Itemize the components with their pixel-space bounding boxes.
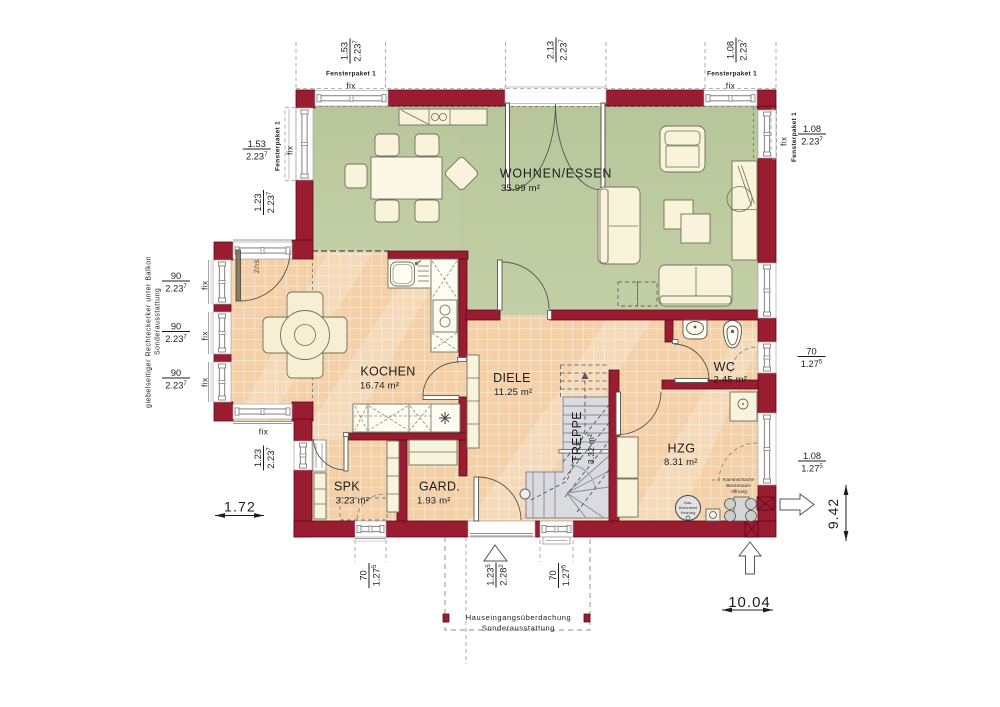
svg-text:Fensterpaket 1: Fensterpaket 1 [326, 71, 376, 78]
svg-text:fix: fix [200, 280, 210, 290]
svg-text:1.53: 1.53 [340, 42, 350, 60]
svg-text:Hauseingangsüberdachung: Hauseingangsüberdachung [466, 613, 572, 622]
svg-text:2.13: 2.13 [546, 41, 556, 59]
svg-text:SUZ: SUZ [253, 259, 260, 274]
svg-text:Fensterpaket 1: Fensterpaket 1 [275, 121, 282, 171]
svg-text:DIELE: DIELE [493, 371, 531, 385]
svg-text:Sonderausstattung: Sonderausstattung [482, 624, 555, 633]
svg-text:GARD.: GARD. [419, 480, 460, 494]
svg-text:öffnung: öffnung [731, 489, 747, 495]
svg-text:WC: WC [714, 360, 736, 374]
svg-text:Fensterpaket 1: Fensterpaket 1 [707, 71, 757, 78]
svg-text:fix: fix [259, 427, 269, 437]
svg-text:fix: fix [726, 81, 736, 91]
svg-text:TREPPE: TREPPE [570, 411, 584, 463]
svg-text:fix: fix [200, 377, 210, 387]
svg-text:35.99 m²: 35.99 m² [501, 183, 540, 194]
svg-text:90: 90 [171, 322, 181, 332]
svg-text:1.93 m²: 1.93 m² [417, 496, 451, 507]
svg-text:1.23: 1.23 [253, 449, 263, 467]
svg-text:2.45 m²: 2.45 m² [714, 375, 748, 386]
svg-text:Kaminschacht-: Kaminschacht- [723, 477, 755, 483]
svg-text:11.25 m²: 11.25 m² [494, 387, 532, 398]
svg-text:giebelseitiger Rechteckerker u: giebelseitiger Rechteckerker unter Balko… [146, 256, 153, 408]
svg-text:90: 90 [171, 368, 181, 378]
svg-text:fix: fix [346, 81, 356, 91]
svg-text:1.53: 1.53 [248, 139, 266, 149]
svg-text:1.08: 1.08 [726, 41, 736, 59]
svg-text:Sonderausstattung: Sonderausstattung [155, 288, 162, 355]
svg-text:1.08: 1.08 [803, 124, 821, 134]
svg-text:70: 70 [548, 570, 558, 580]
svg-text:1.08: 1.08 [803, 451, 821, 461]
svg-text:Fensterpaket 1: Fensterpaket 1 [791, 112, 798, 162]
svg-text:3.23 m²: 3.23 m² [336, 496, 370, 507]
svg-text:Brennraum-: Brennraum- [726, 483, 752, 489]
svg-text:70: 70 [359, 570, 369, 580]
svg-text:Heizung: Heizung [681, 510, 696, 515]
svg-text:9.42: 9.42 [825, 498, 841, 529]
svg-text:HZG: HZG [668, 442, 696, 456]
svg-text:90: 90 [171, 271, 181, 281]
svg-text:fix: fix [285, 145, 295, 155]
svg-text:3.32 m²: 3.32 m² [586, 434, 596, 464]
svg-text:fix: fix [200, 331, 210, 341]
svg-text:16.74 m²: 16.74 m² [360, 381, 399, 392]
svg-text:KOCHEN: KOCHEN [360, 365, 415, 379]
svg-text:1.72: 1.72 [224, 499, 256, 515]
svg-text:8.31 m²: 8.31 m² [664, 457, 698, 468]
svg-text:WOHNEN/ESSEN: WOHNEN/ESSEN [500, 167, 612, 181]
svg-text:1.23: 1.23 [253, 193, 263, 211]
svg-text:SPK: SPK [334, 480, 360, 494]
svg-text:70: 70 [806, 347, 816, 357]
svg-text:fix: fix [779, 136, 789, 146]
